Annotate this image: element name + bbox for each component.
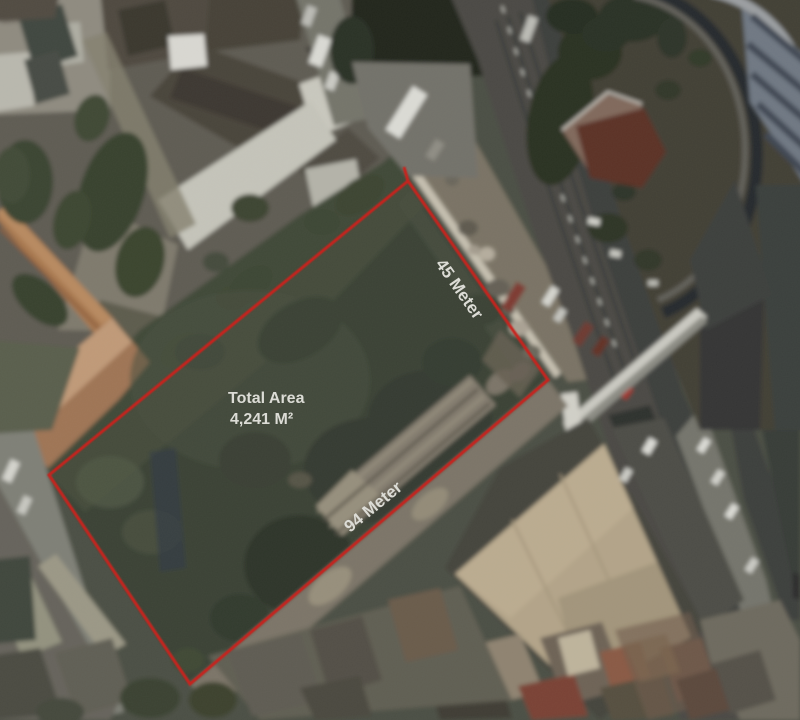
svg-text:Total Area: Total Area (228, 390, 305, 407)
svg-text:4,241 M²: 4,241 M² (230, 411, 293, 428)
